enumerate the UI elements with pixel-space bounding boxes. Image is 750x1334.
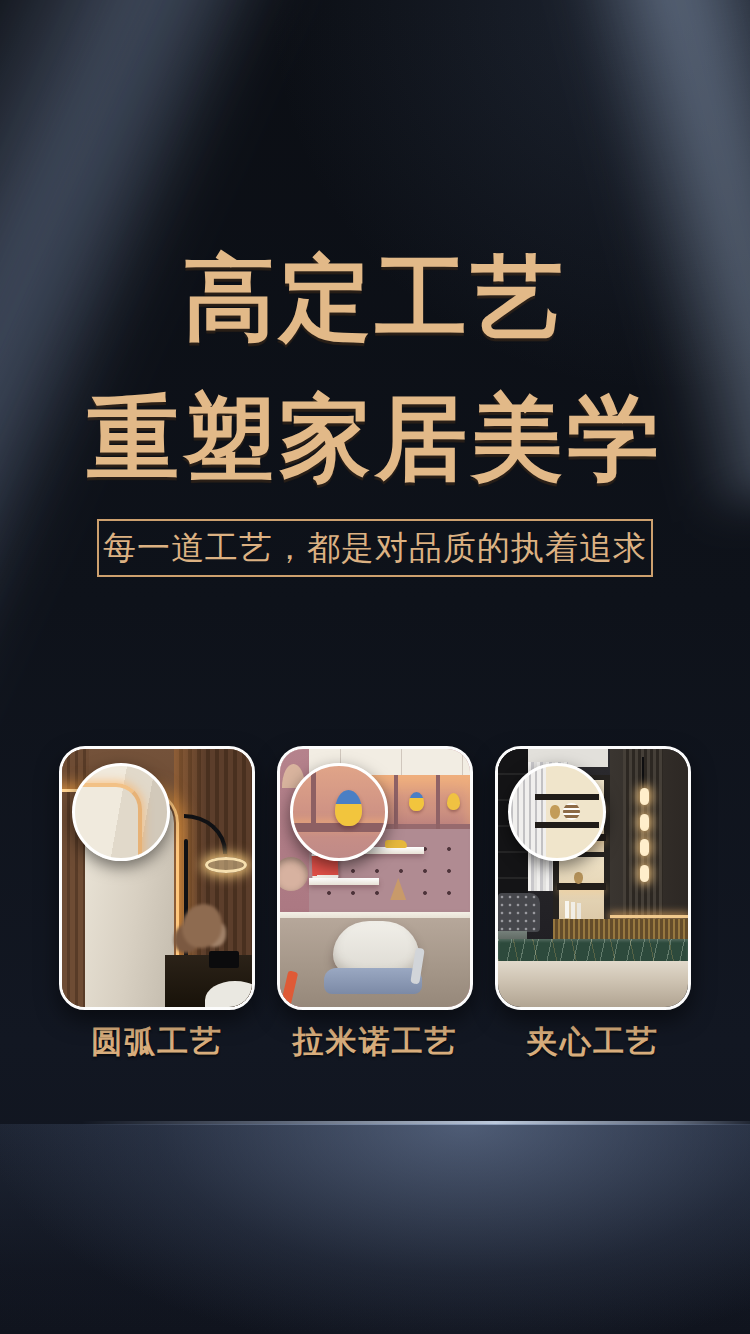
figurine [447, 793, 460, 810]
floor-light-line [80, 1121, 750, 1125]
zoom-circle-icon [290, 763, 388, 861]
craft-card-sandwich: 夹心工艺 [495, 746, 691, 1063]
white-books [565, 901, 569, 918]
green-marble-base [498, 939, 688, 961]
pendant-light [640, 788, 649, 805]
pendant-light [640, 814, 649, 831]
craft-cards: 圆弧工艺 [0, 746, 750, 1063]
floating-shelf [557, 883, 606, 890]
pendant-light [640, 865, 649, 882]
subtitle-box: 每一道工艺，都是对品质的执着追求 [97, 519, 653, 577]
promo-poster: 高定工艺 重塑家居美学 每一道工艺，都是对品质的执着追求 [0, 0, 750, 1334]
floor-glow [0, 1124, 750, 1334]
headline-line-2: 重塑家居美学 [0, 368, 750, 508]
desk-chair-seat [324, 968, 423, 994]
pendant-light [640, 839, 649, 856]
headline: 高定工艺 重塑家居美学 [0, 228, 750, 508]
zoom-circle-icon [508, 763, 606, 861]
craft-photo-lamino [277, 746, 473, 1010]
gold-vase [574, 872, 583, 884]
wall-shelf [309, 878, 379, 885]
craft-card-lamino: 拉米诺工艺 [277, 746, 473, 1063]
subtitle-text: 每一道工艺，都是对品质的执着追求 [103, 526, 647, 571]
vase-closeup [550, 805, 560, 819]
shelf-divider [394, 775, 398, 829]
pendant-wire [642, 757, 644, 788]
dried-plant [182, 904, 222, 948]
zoom-circle-icon [72, 763, 170, 861]
craft-label-arc: 圆弧工艺 [91, 1021, 223, 1063]
craft-label-lamino: 拉米诺工艺 [293, 1021, 458, 1063]
patterned-sofa [498, 893, 540, 932]
headline-line-1: 高定工艺 [0, 228, 750, 368]
desk-clock [209, 951, 239, 968]
figurine-closeup [335, 790, 362, 826]
led-baseline [610, 915, 688, 918]
craft-photo-sandwich [495, 746, 691, 1010]
shelf-divider [436, 775, 440, 829]
stone-floor [498, 961, 688, 1007]
gold-slat-band [553, 919, 688, 940]
shelf-closeup [535, 794, 599, 800]
shelf-divider-closeup [311, 766, 316, 832]
craft-card-arc: 圆弧工艺 [59, 746, 255, 1063]
shelf-closeup [290, 823, 388, 832]
craft-label-sandwich: 夹心工艺 [527, 1021, 659, 1063]
toy-car [385, 840, 407, 848]
craft-photo-arc [59, 746, 255, 1010]
striped-sphere-closeup [563, 803, 580, 820]
